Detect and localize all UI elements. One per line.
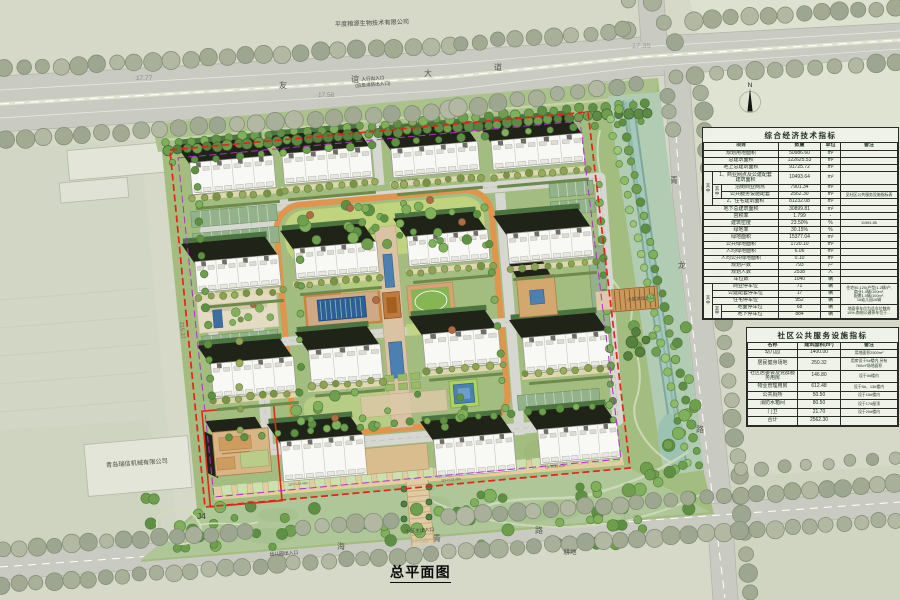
svg-text:海: 海 [337,541,345,551]
svg-text:路: 路 [535,525,543,535]
svg-text:·17.43: ·17.43 [621,514,640,521]
svg-text:龙: 龙 [678,260,686,270]
svg-text:道: 道 [494,62,502,72]
svg-text:N: N [748,82,753,89]
svg-text:耕地: 耕地 [564,547,578,556]
svg-text:大: 大 [424,68,432,78]
svg-text:·17.56: ·17.56 [408,538,428,545]
svg-text:J4: J4 [197,511,206,521]
svg-text:路: 路 [696,424,704,434]
svg-text:·17.58: ·17.58 [316,92,335,99]
svg-text:·17.77: ·17.77 [134,75,153,82]
svg-text:青: 青 [433,533,441,543]
svg-text:·17.35: ·17.35 [629,41,650,50]
svg-text:友: 友 [279,80,287,90]
svg-text:青: 青 [670,175,678,185]
